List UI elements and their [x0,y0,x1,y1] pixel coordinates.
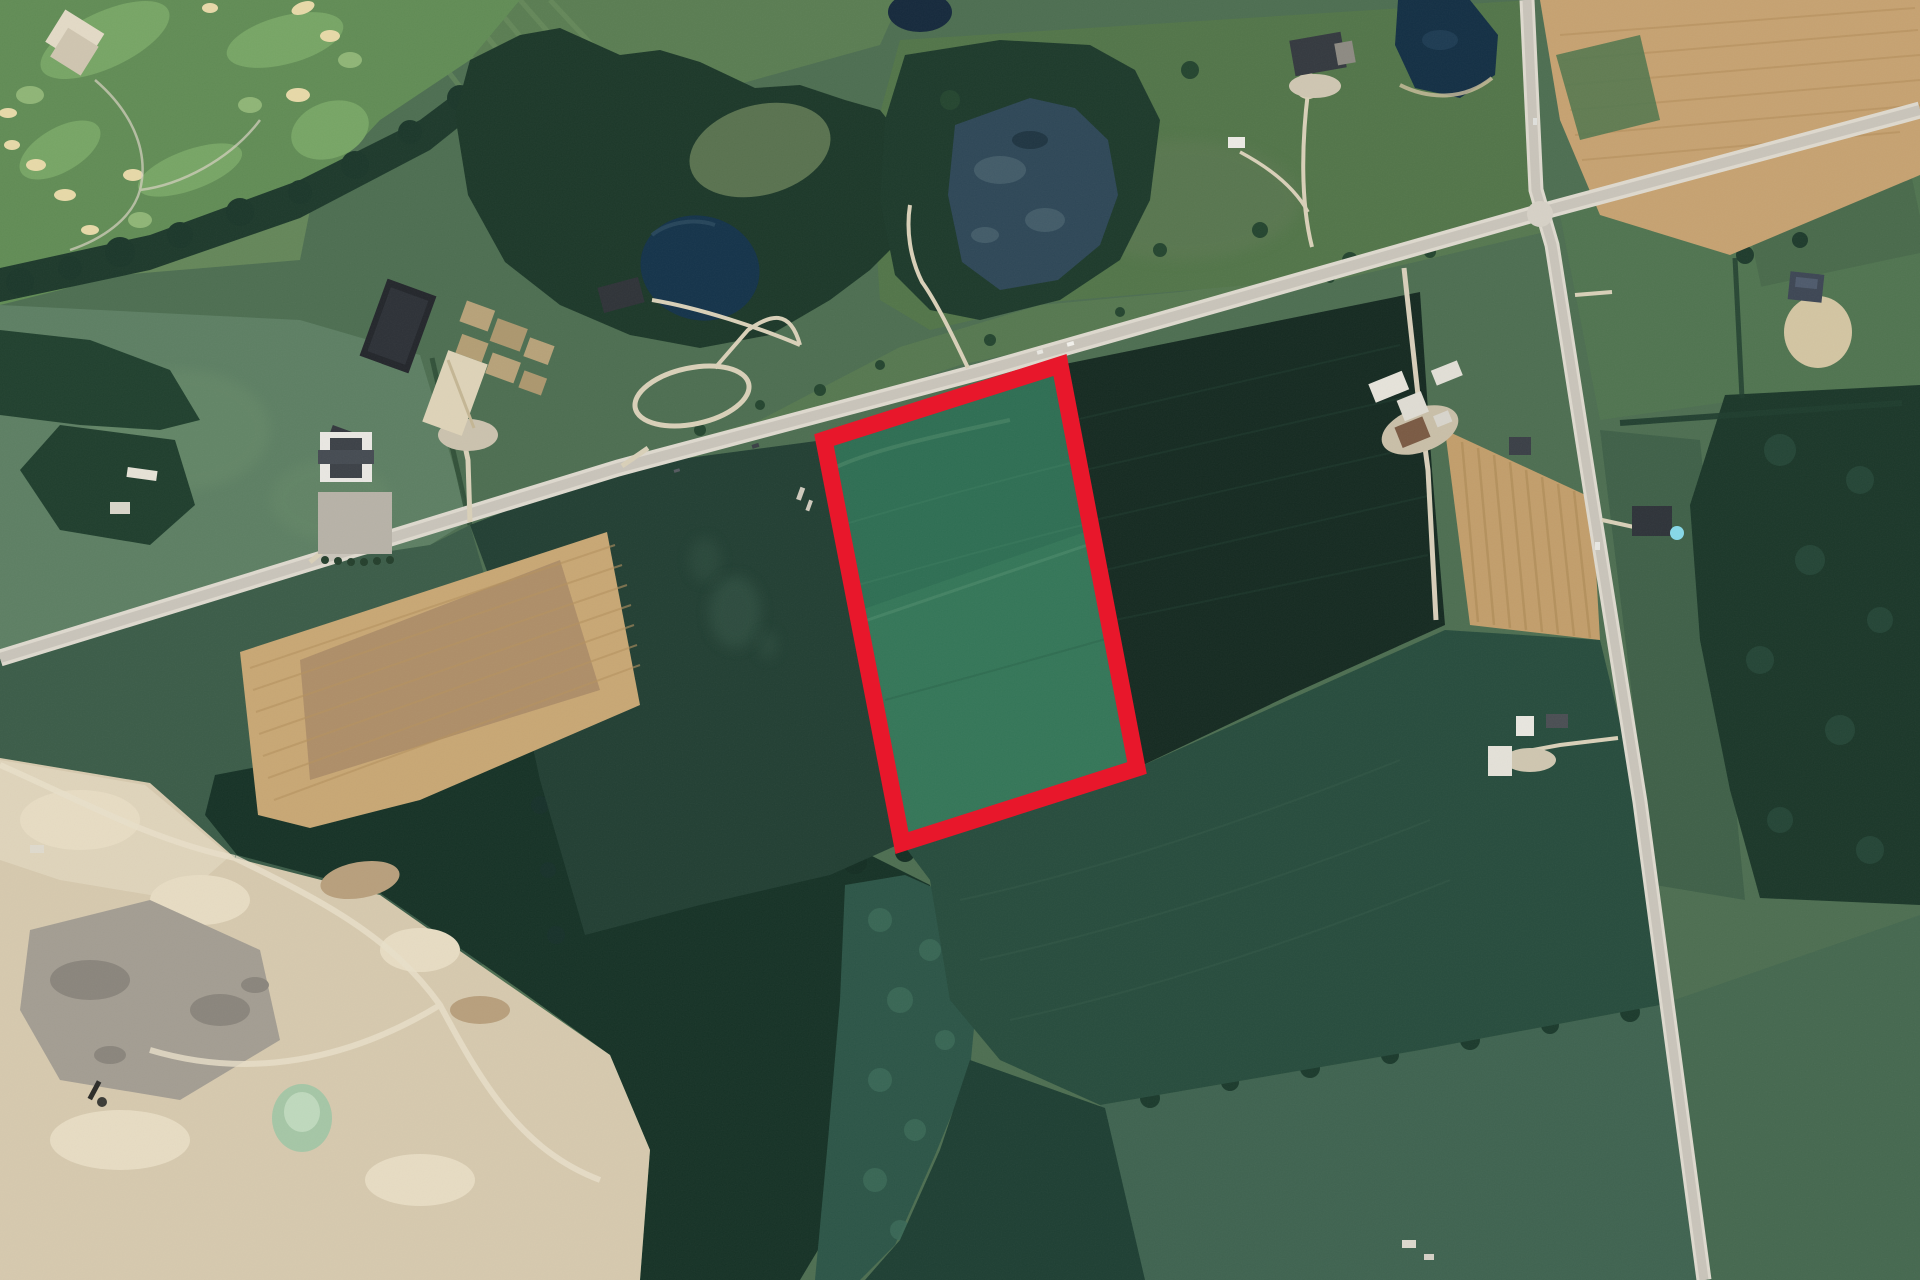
satellite-map[interactable] [0,0,1920,1280]
satellite-map-canvas [0,0,1920,1280]
image-grain [0,0,1920,1280]
